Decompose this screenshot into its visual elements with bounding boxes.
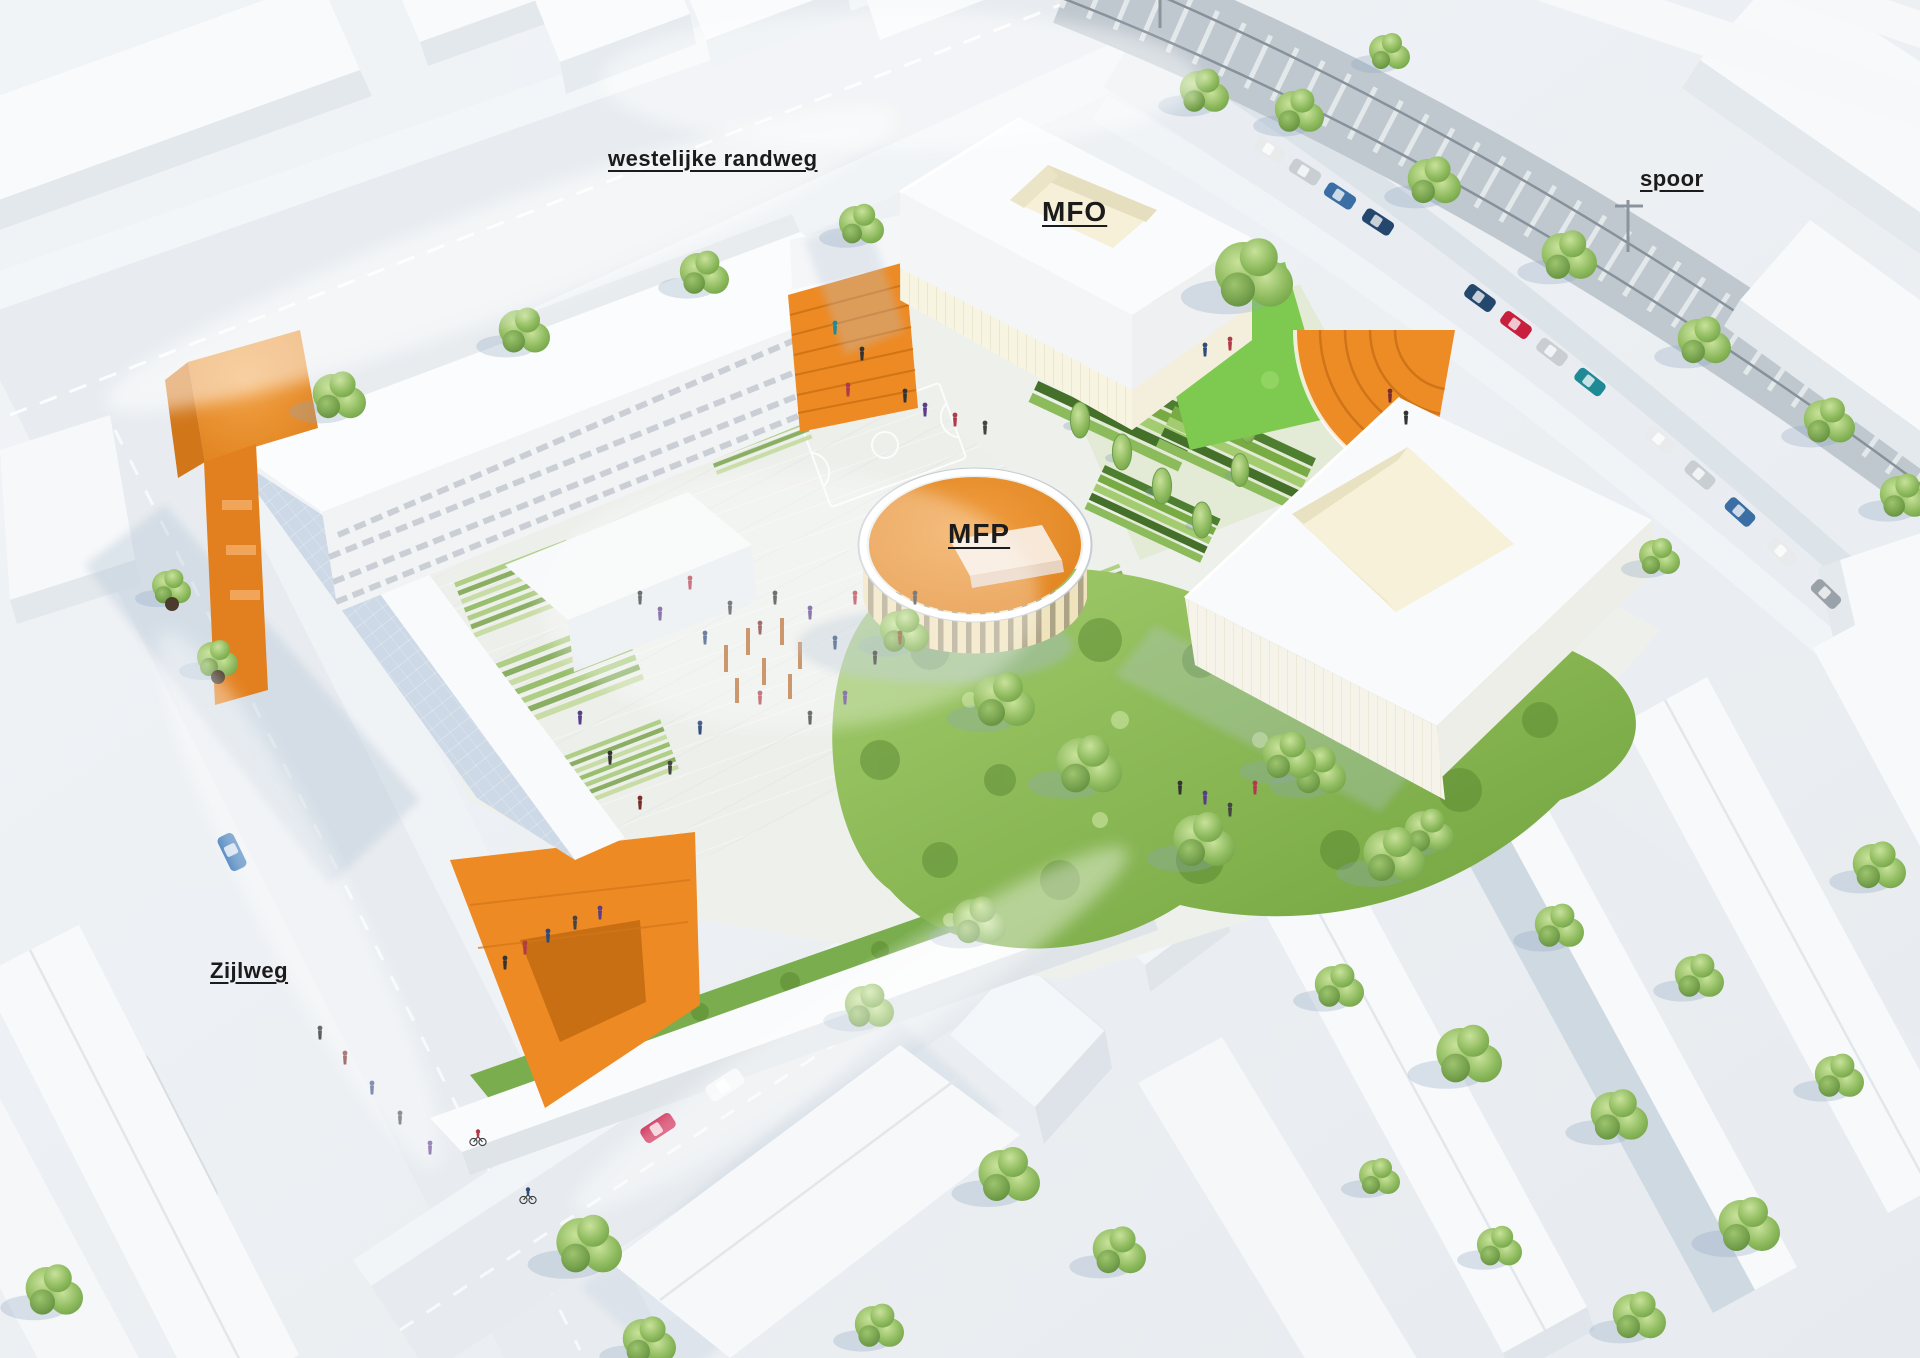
label-mfp: MFP xyxy=(948,518,1010,550)
label-mfo: MFO xyxy=(1042,196,1107,228)
label-zijlweg: Zijlweg xyxy=(210,958,288,984)
label-westelijke-randweg: westelijke randweg xyxy=(608,146,818,172)
rendering-canvas xyxy=(0,0,1920,1358)
site-plan-rendering: westelijke randweg MFO spoor MFP Zijlweg xyxy=(0,0,1920,1358)
label-spoor: spoor xyxy=(1640,166,1704,192)
